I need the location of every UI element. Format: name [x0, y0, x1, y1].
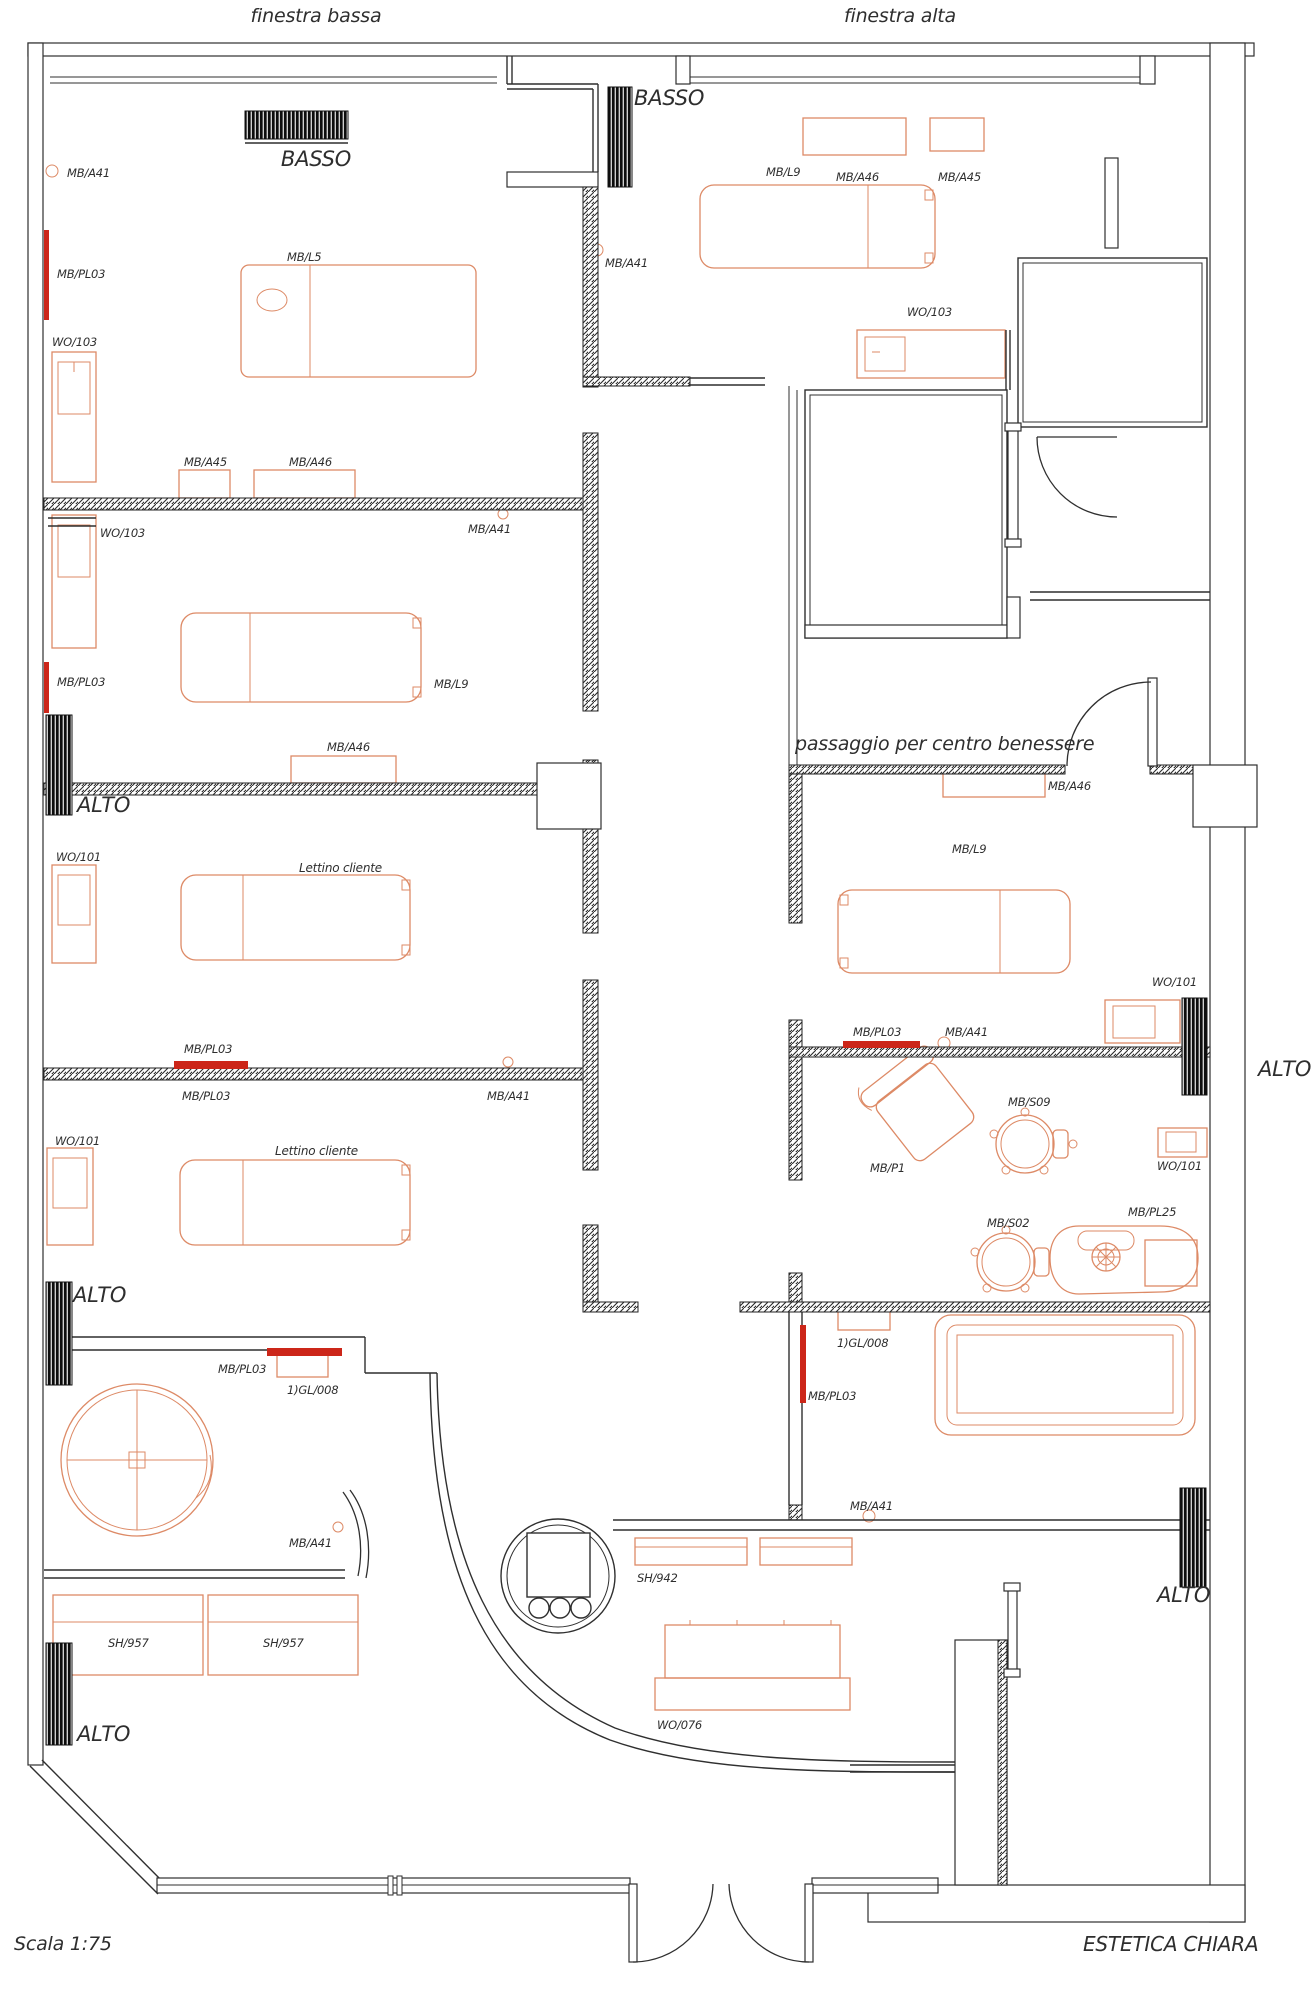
- spa-chair-mb-pl25: [1050, 1226, 1198, 1294]
- square-room: [805, 390, 1007, 638]
- label-mb-p1: MB/P1: [870, 1161, 905, 1175]
- label-alto-1: ALTO: [75, 793, 130, 817]
- sliding-door-square-room: [1005, 423, 1021, 547]
- wall-passaggio-bottom: [789, 1047, 1210, 1057]
- cabinet-mb-a45-l: [179, 470, 230, 498]
- bed-lettino-1: [181, 875, 410, 960]
- counter-wo103-tr: [857, 330, 1005, 378]
- window-alto-right: [1182, 998, 1207, 1095]
- label-wo-103-1: WO/103: [52, 335, 97, 349]
- label-alto-br: ALTO: [1155, 1583, 1210, 1607]
- label-mb-pl03-5: MB/PL03: [218, 1362, 266, 1376]
- bed-mb-l9-tr: [700, 185, 935, 268]
- door-arc-corner-room: [1037, 437, 1117, 517]
- counter-wo101-p: [1105, 1000, 1180, 1043]
- label-mb-pl03-6: MB/PL03: [808, 1389, 856, 1403]
- wall-y592: [1007, 592, 1210, 638]
- bed-mb-l9-p: [838, 890, 1070, 973]
- wall-passaggio-top: [789, 765, 1193, 774]
- label-mb-a46-tr: MB/A46: [836, 170, 879, 184]
- label-alto-r: ALTO: [1256, 1057, 1311, 1081]
- label-mb-pl25: MB/PL25: [1128, 1205, 1176, 1219]
- cabinet-mb-a46-l: [254, 470, 355, 498]
- label-scala: Scala 1:75: [14, 1933, 112, 1955]
- label-gl-008-1: 1)GL/008: [837, 1336, 888, 1350]
- entrance-double-door: [629, 1884, 813, 1962]
- label-gl-008-2: 1)GL/008: [287, 1383, 338, 1397]
- walls-layer: [28, 43, 1257, 1922]
- stool-mb-s09: [990, 1108, 1077, 1174]
- label-sh-942: SH/942: [637, 1571, 678, 1585]
- label-mb-a41-6: MB/A41: [289, 1536, 332, 1550]
- chamfer-inner: [42, 1760, 168, 1887]
- door-niche-b-c: [537, 763, 601, 829]
- label-mb-pl03-p: MB/PL03: [853, 1025, 901, 1039]
- wall-pedicure-bottom: [583, 1302, 1210, 1312]
- label-wo-103-3: WO/103: [100, 526, 145, 540]
- floor-plan-page: finestra bassafinestra altaBASSOBASSOMB/…: [0, 0, 1313, 2000]
- reception-column: [501, 1519, 615, 1633]
- label-mb-pl03-4: MB/PL03: [182, 1089, 230, 1103]
- stool-mb-s02: [971, 1226, 1049, 1292]
- chair-mb-p1: [853, 1038, 981, 1168]
- label-mb-l5: MB/L5: [287, 250, 321, 264]
- label-mb-pl03-2: MB/PL03: [57, 675, 105, 689]
- label-basso-2: BASSO: [634, 86, 704, 110]
- label-mb-s02: MB/S02: [987, 1216, 1029, 1230]
- outer-wall-right: [1210, 43, 1245, 1922]
- label-wo-101-1: WO/101: [56, 850, 101, 864]
- label-mb-a46-l: MB/A46: [289, 455, 332, 469]
- label-mb-a41-2: MB/A41: [605, 256, 648, 270]
- curved-corridor-wall: [430, 1373, 955, 1772]
- label-mb-a45-l: MB/A45: [184, 455, 227, 469]
- window-alto-3: [46, 1643, 72, 1745]
- label-finestra-alta: finestra alta: [844, 5, 956, 27]
- shopfront-window-left: [157, 1876, 630, 1895]
- heater-mb-pl03-1: [44, 230, 49, 320]
- bed-mb-l9-left: [181, 613, 421, 702]
- washing-machine: [61, 1384, 213, 1536]
- desk-wo076: [655, 1620, 850, 1710]
- bed-lettino-2: [180, 1160, 410, 1245]
- cabinet-mb-a46-p: [943, 772, 1045, 797]
- wall-room-c-d: [44, 1068, 583, 1080]
- cabinet-mb-a46-tr: [803, 118, 906, 155]
- sink-wo101-ped: [1158, 1128, 1207, 1157]
- window-basso-1: [245, 111, 348, 143]
- windows-layer: [46, 87, 1207, 1745]
- label-wo-101-3: WO/101: [1157, 1159, 1202, 1173]
- label-mb-a41-3: MB/A41: [468, 522, 511, 536]
- cabinet-sh957-1: [53, 1595, 203, 1675]
- shelf-gl008-1: [838, 1310, 890, 1330]
- window-alto-2: [46, 1282, 72, 1385]
- bed-mb-l5: [241, 265, 476, 377]
- label-mb-a41-4: MB/A41: [487, 1089, 530, 1103]
- tub-large: [935, 1315, 1195, 1435]
- label-wo-076: WO/076: [657, 1718, 702, 1732]
- label-alto-2: ALTO: [71, 1283, 126, 1307]
- label-sh-957-2: SH/957: [263, 1636, 304, 1650]
- label-finestra-bassa: finestra bassa: [251, 5, 382, 27]
- label-mb-pl03-1: MB/PL03: [57, 267, 105, 281]
- wall-device-circles: [46, 165, 950, 1532]
- label-basso-1: BASSO: [281, 147, 351, 171]
- label-mb-a45-tr: MB/A45: [938, 170, 981, 184]
- heater-mb-pl03-5: [843, 1041, 920, 1048]
- label-lettino-2: Lettino cliente: [275, 1144, 358, 1158]
- cabinet-mb-a46-b: [291, 756, 396, 783]
- heater-mb-pl03-3: [174, 1061, 248, 1069]
- chamfer-outer: [30, 1766, 158, 1894]
- floor-plan-drawing: finestra bassafinestra altaBASSOBASSOMB/…: [0, 0, 1313, 2000]
- counter-wo103-b: [52, 515, 96, 648]
- label-mb-pl03-3: MB/PL03: [184, 1042, 232, 1056]
- outer-wall-left: [28, 43, 43, 1765]
- window-alto-bottom-right: [1180, 1488, 1206, 1587]
- counter-wo101-d: [47, 1148, 93, 1245]
- heater-mb-pl03-2: [44, 662, 49, 713]
- doors-layer: [629, 423, 1157, 1962]
- wall-reception: [613, 1520, 1210, 1530]
- wall-room-a-b: [44, 498, 583, 510]
- heater-mb-pl03-6: [800, 1325, 806, 1403]
- cabinet-mb-a45-tr: [930, 118, 984, 151]
- cabinet-sh942-2: [760, 1538, 852, 1565]
- central-wall: [583, 187, 598, 1302]
- wall-laundry: [44, 1490, 369, 1578]
- label-mb-a41-p: MB/A41: [945, 1025, 988, 1039]
- label-passaggio: passaggio per centro benessere: [794, 733, 1094, 755]
- label-mb-a41-5: MB/A41: [850, 1499, 893, 1513]
- label-mb-l9-l: MB/L9: [434, 677, 468, 691]
- heater-mb-pl03-4: [267, 1348, 342, 1356]
- shelf-gl008-2: [277, 1355, 328, 1377]
- counter-wo101-c: [52, 865, 96, 963]
- label-alto-3: ALTO: [75, 1722, 130, 1746]
- counter-wo103-a: [52, 352, 96, 482]
- shopfront-window-right: [812, 1878, 938, 1893]
- furniture-layer: [46, 118, 1207, 1710]
- label-mb-a46-p: MB/A46: [1048, 779, 1091, 793]
- pillar-right: [1193, 765, 1257, 827]
- top-window-sills: [50, 56, 1155, 84]
- label-mb-s09: MB/S09: [1008, 1095, 1050, 1109]
- corner-room: [1006, 158, 1207, 427]
- label-mb-l9-p: MB/L9: [952, 842, 986, 856]
- wall-midright-top: [583, 377, 765, 386]
- label-lettino-1: Lettino cliente: [299, 861, 382, 875]
- window-basso-2: [608, 87, 632, 187]
- outer-wall-top: [28, 43, 1254, 56]
- label-mb-a41-1: MB/A41: [67, 166, 110, 180]
- label-estetica: ESTETICA CHIARA: [1083, 1932, 1258, 1956]
- cabinet-sh957-2: [208, 1595, 358, 1675]
- label-mb-a46-2: MB/A46: [327, 740, 370, 754]
- alcove-walls: [507, 56, 598, 187]
- label-wo-101-p: WO/101: [1152, 975, 1197, 989]
- cabinet-sh942-1: [635, 1538, 747, 1565]
- label-mb-l9-tr: MB/L9: [766, 165, 800, 179]
- label-sh-957-1: SH/957: [108, 1636, 149, 1650]
- label-wo-101-2: WO/101: [55, 1134, 100, 1148]
- window-alto-1: [46, 715, 72, 815]
- label-wo-103-2: WO/103: [907, 305, 952, 319]
